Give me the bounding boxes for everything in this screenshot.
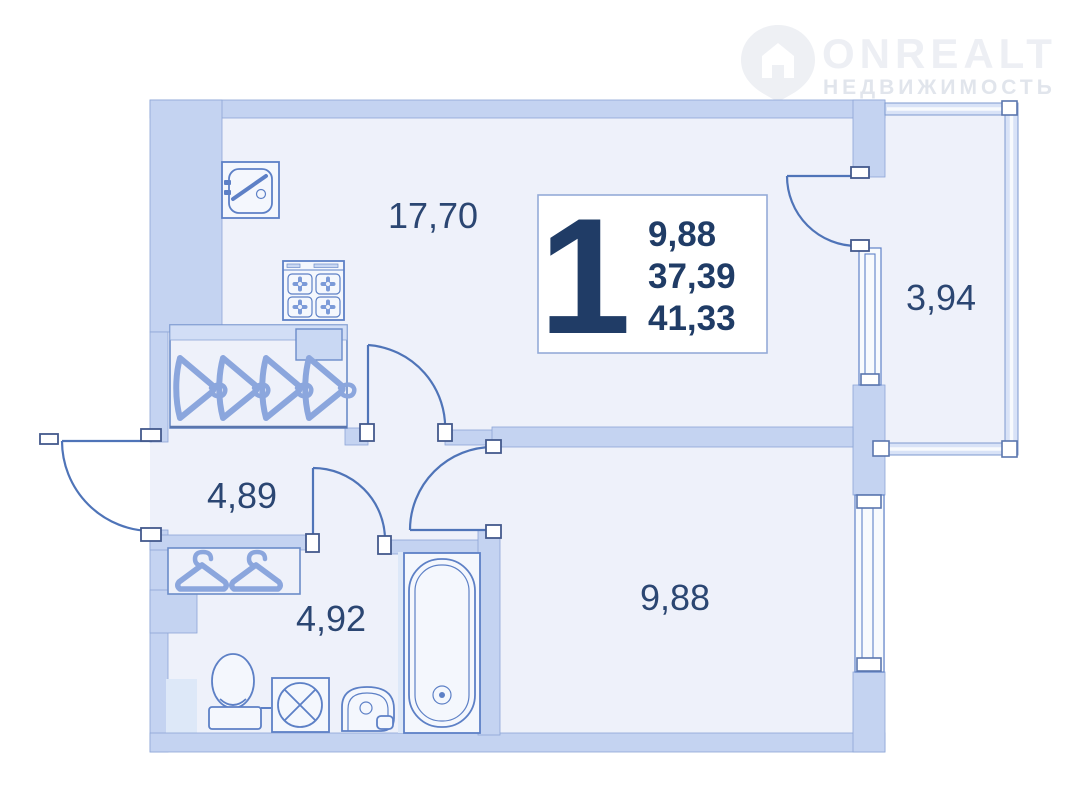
wall-right-lower <box>853 672 885 752</box>
info-area-2: 37,39 <box>648 257 736 296</box>
bathroom-sink <box>342 687 394 731</box>
wardrobe-2-hangers <box>168 548 300 594</box>
wall-bath-top <box>385 540 492 554</box>
wall-top <box>150 100 885 118</box>
info-area-3: 41,33 <box>648 299 736 338</box>
wall-left-shaft <box>166 679 197 733</box>
wall-bedroom-top <box>492 427 853 447</box>
entrance-door <box>40 429 161 541</box>
wall-left-upper <box>150 332 168 442</box>
room-area-label-hallway: 4,89 <box>207 475 277 516</box>
room-area-label-kitchen: 17,70 <box>388 195 478 236</box>
bathtub <box>404 553 480 733</box>
kitchen-balcony-window <box>859 248 881 385</box>
stove <box>283 261 344 320</box>
room-area-label-bedroom: 9,88 <box>640 577 710 618</box>
wall-bath-bedroom <box>478 530 500 735</box>
wall-bottom <box>150 733 885 752</box>
watermark: ONREALT НЕДВИЖИМОСТЬ <box>741 25 1057 102</box>
info-box: 1 9,88 37,39 41,33 <box>538 184 767 368</box>
watermark-brand: ONREALT <box>822 30 1057 77</box>
floor-plan-page: ONREALT НЕДВИЖИМОСТЬ <box>0 0 1080 810</box>
bedroom-window <box>855 495 884 672</box>
wall-left-patch <box>150 590 197 633</box>
washing-machine <box>272 678 329 732</box>
wall-left-thick <box>150 100 222 332</box>
wall-left-lower <box>150 530 168 752</box>
wardrobe-4-hangers <box>170 325 354 428</box>
info-area-1: 9,88 <box>648 215 716 254</box>
wall-right-upper <box>853 100 885 177</box>
floor-plan-svg: ONREALT НЕДВИЖИМОСТЬ <box>0 0 1080 810</box>
rooms-number: 1 <box>539 184 631 368</box>
kitchen-sink <box>222 162 279 218</box>
watermark-subtitle: НЕДВИЖИМОСТЬ <box>823 76 1056 99</box>
wall-right-middle <box>853 385 885 495</box>
room-area-label-bathroom: 4,92 <box>296 598 366 639</box>
room-area-label-balcony: 3,94 <box>906 277 976 318</box>
